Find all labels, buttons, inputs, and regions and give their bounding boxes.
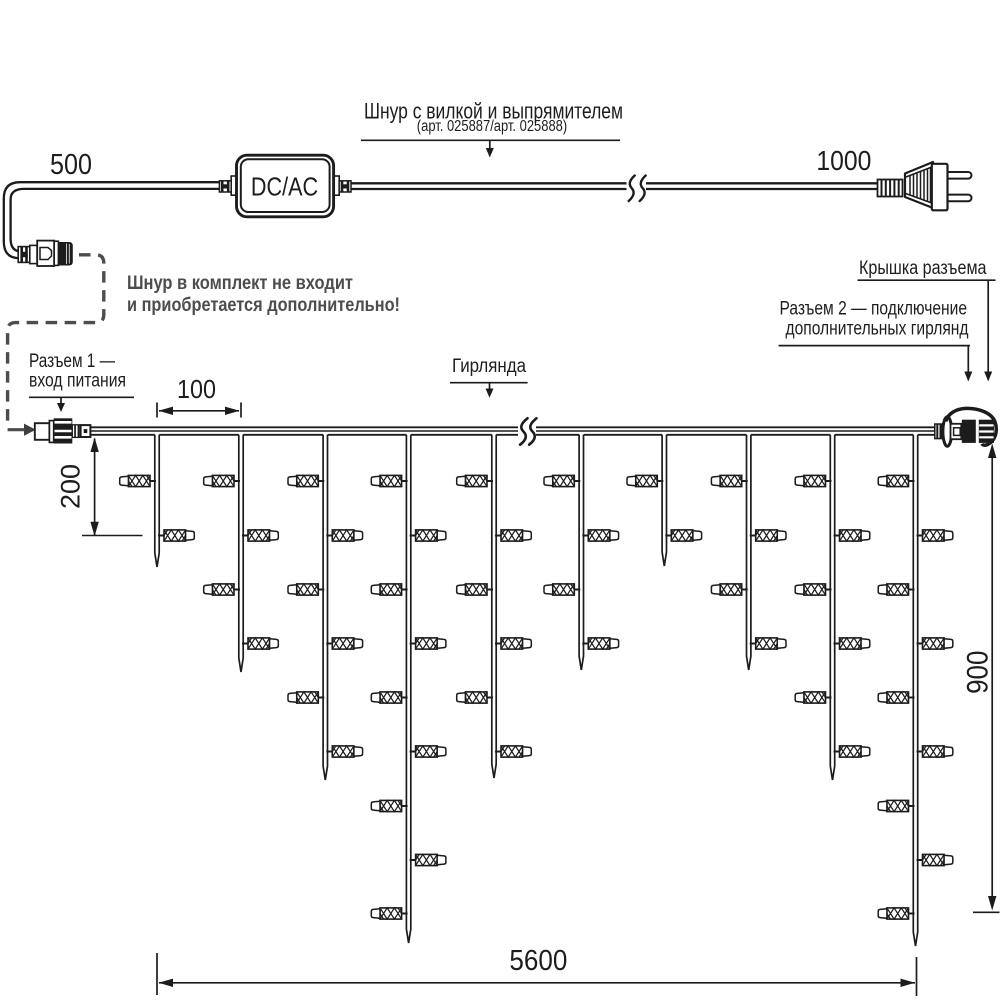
svg-text:200: 200 <box>56 464 86 509</box>
svg-text:Разъем 2 — подключение: Разъем 2 — подключение <box>780 298 968 319</box>
svg-text:вход питания: вход питания <box>29 371 126 392</box>
svg-text:(арт. 025887/арт. 025888): (арт. 025887/арт. 025888) <box>417 118 567 135</box>
svg-text:1000: 1000 <box>816 145 871 176</box>
svg-text:Гирлянда: Гирлянда <box>452 356 526 377</box>
svg-text:дополнительных гирлянд: дополнительных гирлянд <box>786 318 969 339</box>
svg-text:DC/AC: DC/AC <box>251 171 318 201</box>
svg-text:5600: 5600 <box>509 945 567 977</box>
svg-text:100: 100 <box>177 376 216 404</box>
svg-text:500: 500 <box>50 149 92 181</box>
svg-text:Шнур в комплект не входит: Шнур в комплект не входит <box>127 272 353 294</box>
svg-text:и приобретается дополнительно!: и приобретается дополнительно! <box>127 294 400 316</box>
svg-text:Разъем 1 —: Разъем 1 — <box>29 351 115 372</box>
svg-text:Крышка разъема: Крышка разъема <box>859 258 987 279</box>
svg-text:900: 900 <box>962 651 995 694</box>
